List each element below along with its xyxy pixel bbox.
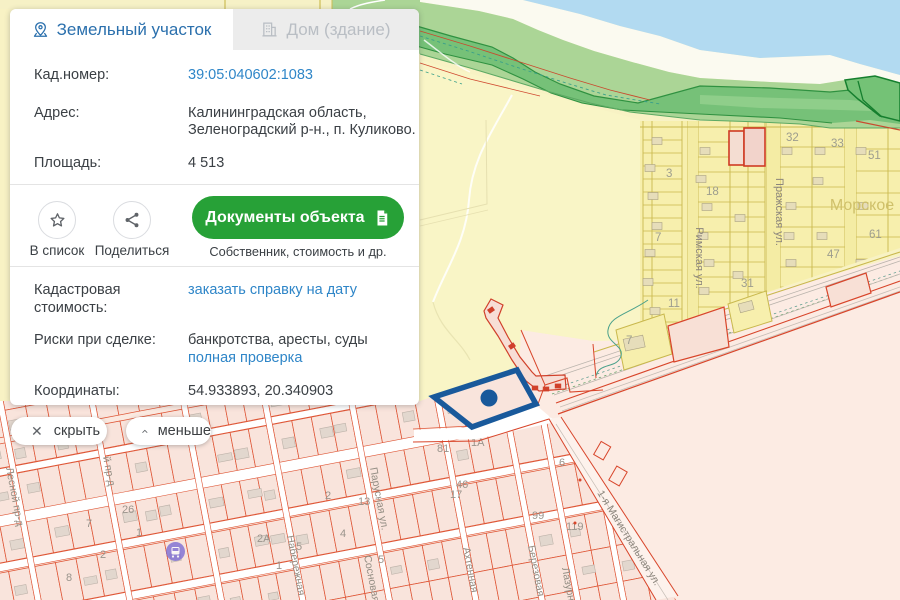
svg-text:Пражская ул.: Пражская ул. — [773, 178, 785, 246]
svg-text:Римская ул.: Римская ул. — [693, 227, 705, 288]
svg-text:Морское: Морское — [830, 197, 894, 214]
svg-text:7: 7 — [655, 232, 661, 244]
svg-text:6: 6 — [559, 457, 565, 469]
svg-text:1: 1 — [136, 527, 142, 539]
svg-text:99: 99 — [532, 510, 544, 522]
svg-text:47: 47 — [827, 249, 840, 261]
svg-text:7: 7 — [626, 335, 632, 347]
svg-text:1: 1 — [276, 560, 282, 572]
svg-text:32: 32 — [786, 132, 799, 144]
svg-text:2: 2 — [100, 549, 106, 561]
svg-text:3: 3 — [666, 168, 672, 180]
svg-text:2: 2 — [325, 490, 331, 502]
svg-text:4: 4 — [340, 528, 346, 540]
svg-text:13: 13 — [358, 496, 370, 508]
svg-text:31: 31 — [741, 278, 754, 290]
svg-text:81: 81 — [437, 443, 449, 455]
svg-text:2А: 2А — [257, 533, 271, 545]
svg-text:51: 51 — [868, 150, 881, 162]
svg-text:7: 7 — [86, 518, 92, 530]
svg-text:26: 26 — [122, 504, 134, 516]
svg-text:61: 61 — [869, 229, 882, 241]
svg-text:46: 46 — [456, 479, 468, 491]
svg-text:11: 11 — [668, 298, 680, 310]
svg-text:5: 5 — [378, 554, 384, 566]
svg-text:18: 18 — [706, 186, 719, 198]
svg-text:8: 8 — [66, 572, 72, 584]
svg-text:33: 33 — [831, 138, 844, 150]
svg-text:5: 5 — [296, 541, 302, 553]
